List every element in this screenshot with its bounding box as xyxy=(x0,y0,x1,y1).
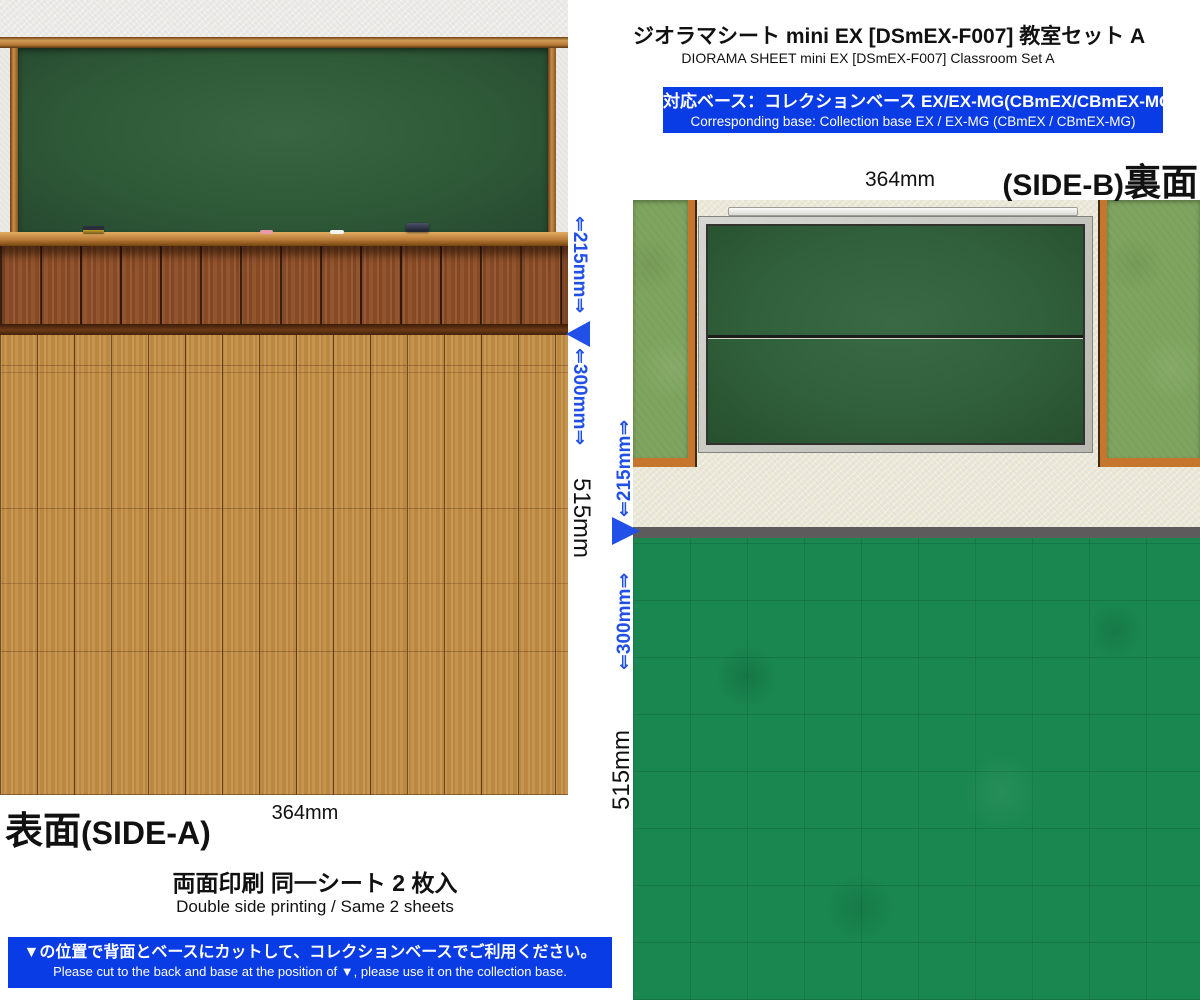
product-title-en: DIORAMA SHEET mini EX [DSmEX-F007] Class… xyxy=(633,50,1103,66)
white-chalk-icon xyxy=(330,230,344,234)
side-b-green-floor xyxy=(633,538,1200,1000)
cut-instruction-en: Please cut to the back and base at the p… xyxy=(8,963,612,980)
side-a-lower-height-dimension: ⇐300mm⇒ xyxy=(568,348,591,445)
side-a-sheet-image xyxy=(0,0,568,795)
side-b-map-rail xyxy=(728,207,1078,216)
side-a-total-height-dimension: 515mm xyxy=(567,478,595,558)
side-a-wall-floor-divider xyxy=(0,324,568,335)
side-a-label-en: (SIDE-A) xyxy=(81,815,211,851)
pink-chalk-icon xyxy=(260,230,273,234)
base-banner-text-en: Corresponding base: Collection base EX /… xyxy=(663,113,1163,130)
side-b-label-jp: 裏面 xyxy=(1124,162,1198,203)
side-a-wainscot-panel xyxy=(0,246,568,324)
side-a-chalk-tray xyxy=(0,232,568,246)
side-a-width-dimension: 364mm xyxy=(225,802,385,825)
side-a-plaster-wall xyxy=(0,0,568,37)
cut-marker-triangle-icon xyxy=(612,517,640,545)
side-b-baseboard-strip xyxy=(633,527,1200,538)
sheet-info-jp: 両面印刷 同一シート 2 枚入 xyxy=(15,864,615,898)
side-b-upper-height-dimension: ⇐215mm⇒ xyxy=(613,420,636,517)
side-b-label-en: (SIDE-B) xyxy=(1002,169,1124,202)
side-a-wood-floor xyxy=(0,335,568,795)
cut-marker-triangle-icon xyxy=(566,321,590,347)
side-a-label-jp: 表面 xyxy=(5,811,81,853)
side-b-width-dimension: 364mm xyxy=(820,168,980,192)
side-a-chalkboard-surface xyxy=(18,48,548,232)
cut-instruction-jp: ▼の位置で背面とベースにカットして、コレクションベースでご利用ください。 xyxy=(8,942,612,963)
side-b-sheet-image xyxy=(633,200,1200,1000)
chalk-eraser-icon xyxy=(83,226,104,233)
side-b-right-bulletin-panel xyxy=(1100,200,1200,467)
side-b-back-board-frame xyxy=(698,216,1093,453)
side-b-total-height-dimension: 515mm xyxy=(608,730,636,810)
side-a-upper-height-dimension: ⇐215mm⇒ xyxy=(568,216,591,313)
side-b-lower-height-dimension: ⇐300mm⇒ xyxy=(613,573,636,670)
product-sheet-page: ジオラマシート mini EX [DSmEX-F007] 教室セット A DIO… xyxy=(0,0,1200,1000)
side-b-left-bulletin-panel xyxy=(633,200,695,467)
side-a-label: 表面(SIDE-A) xyxy=(5,800,211,855)
product-title-jp: ジオラマシート mini EX [DSmEX-F007] 教室セット A xyxy=(633,20,1103,50)
side-a-chalkboard-left-frame xyxy=(10,48,18,232)
side-a-chalkboard-top-rail xyxy=(0,37,568,48)
side-b-back-board-surface xyxy=(706,224,1085,445)
base-banner-text-jp: 対応ベース：コレクションベース EX/EX-MG(CBmEX/CBmEX-MG) xyxy=(663,91,1163,113)
side-a-chalkboard-zone xyxy=(0,48,568,232)
side-a-chalkboard-right-frame xyxy=(548,48,556,232)
base-compatibility-banner: 対応ベース：コレクションベース EX/EX-MG(CBmEX/CBmEX-MG)… xyxy=(663,87,1163,133)
sheet-info-en: Double side printing / Same 2 sheets xyxy=(15,897,615,917)
cut-instruction-banner: ▼の位置で背面とベースにカットして、コレクションベースでご利用ください。 Ple… xyxy=(8,937,612,988)
chalk-eraser-icon xyxy=(406,223,429,232)
side-b-back-board-divider xyxy=(708,335,1083,339)
